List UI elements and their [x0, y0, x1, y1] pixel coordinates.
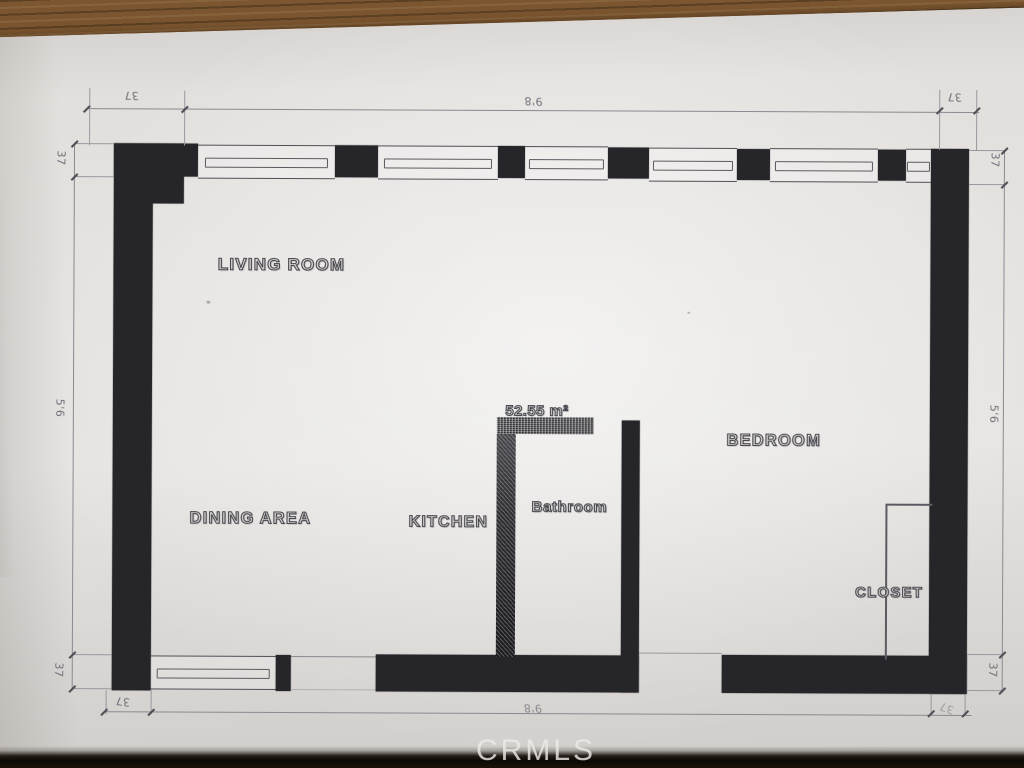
dimension-label-right-height: 5'6: [987, 405, 1000, 424]
extension-line: [969, 150, 1005, 151]
wall-kitchen-bathroom: [496, 420, 516, 657]
dimension-label-top-width: 9'8: [524, 94, 543, 108]
dimension-label-left-top-offset: 37: [54, 150, 68, 165]
kitchen-label: KITCHEN: [409, 514, 489, 532]
extension-line: [939, 90, 940, 150]
dimension-label-top-left-offset: 37: [123, 89, 139, 103]
extension-line: [184, 91, 185, 146]
window-top-2: [378, 145, 498, 180]
window-top-5: [770, 148, 878, 182]
crmls-watermark: CRMLS: [476, 734, 596, 768]
dimension-line-left: [72, 143, 75, 689]
extension-line: [72, 688, 112, 689]
dimension-line-top: [86, 108, 979, 113]
dimension-label-right-bottom-offset: 37: [986, 662, 1000, 677]
closet-label: CLOSET: [855, 584, 923, 601]
dimension-label-left-height: 5'6: [53, 399, 66, 418]
wall-right: [929, 149, 969, 694]
bathroom-label: Bathroom: [532, 499, 608, 516]
wall-top-pier-3: [608, 147, 649, 178]
extension-line: [976, 90, 977, 150]
extension-line: [74, 143, 114, 144]
wall-top-left-corner-step: [153, 143, 184, 203]
window-top-6: [906, 149, 931, 183]
window-top-4: [649, 148, 737, 182]
floor-plan: LIVING ROOM DINING AREA KITCHEN Bathroom…: [0, 0, 1024, 768]
wall-bottom-center: [376, 654, 639, 692]
dimension-tick: [998, 687, 1006, 694]
dimension-label-bottom-left-offset: 37: [115, 694, 130, 709]
wall-top-pier-2: [498, 146, 525, 178]
extension-line: [967, 654, 1003, 655]
dimension-label-top-right-offset: 37: [946, 90, 962, 104]
window-top-1: [198, 145, 335, 180]
extension-line: [967, 690, 1003, 691]
extension-line: [72, 654, 112, 655]
extension-line: [74, 176, 114, 177]
closet-top-line: [885, 504, 932, 506]
dimension-line-right: [1002, 150, 1005, 692]
extension-line: [89, 88, 90, 145]
wall-bottom-pier: [276, 655, 291, 691]
photocopy-speck: [206, 301, 210, 304]
dimension-tick: [961, 710, 969, 717]
wall-bathroom-bedroom: [621, 420, 640, 692]
area-label: 52.55 m²: [505, 402, 568, 419]
closet-partition-line: [885, 504, 888, 660]
window-bottom-1: [151, 655, 276, 690]
photocopy-speck: [687, 312, 690, 314]
extension-line: [969, 184, 1005, 185]
dining-area-label: DINING AREA: [190, 509, 312, 529]
dimension-tick: [927, 710, 935, 717]
bedroom-label: BEDROOM: [726, 431, 821, 450]
door-opening-bottom-left: [291, 656, 376, 690]
wall-left: [112, 143, 153, 690]
living-room-label: LIVING ROOM: [218, 255, 346, 276]
wall-top-pier-5: [878, 150, 906, 181]
wall-bottom-right: [722, 655, 967, 694]
wall-top-pier-1: [335, 145, 378, 177]
dimension-label-bottom-width: 9'8: [523, 701, 543, 715]
dimension-label-right-top-offset: 37: [988, 152, 1002, 167]
wall-top-pier-4: [737, 149, 770, 180]
door-opening-threshold: [639, 653, 722, 654]
window-top-3: [525, 146, 608, 180]
dimension-label-left-bottom-offset: 37: [52, 662, 66, 677]
